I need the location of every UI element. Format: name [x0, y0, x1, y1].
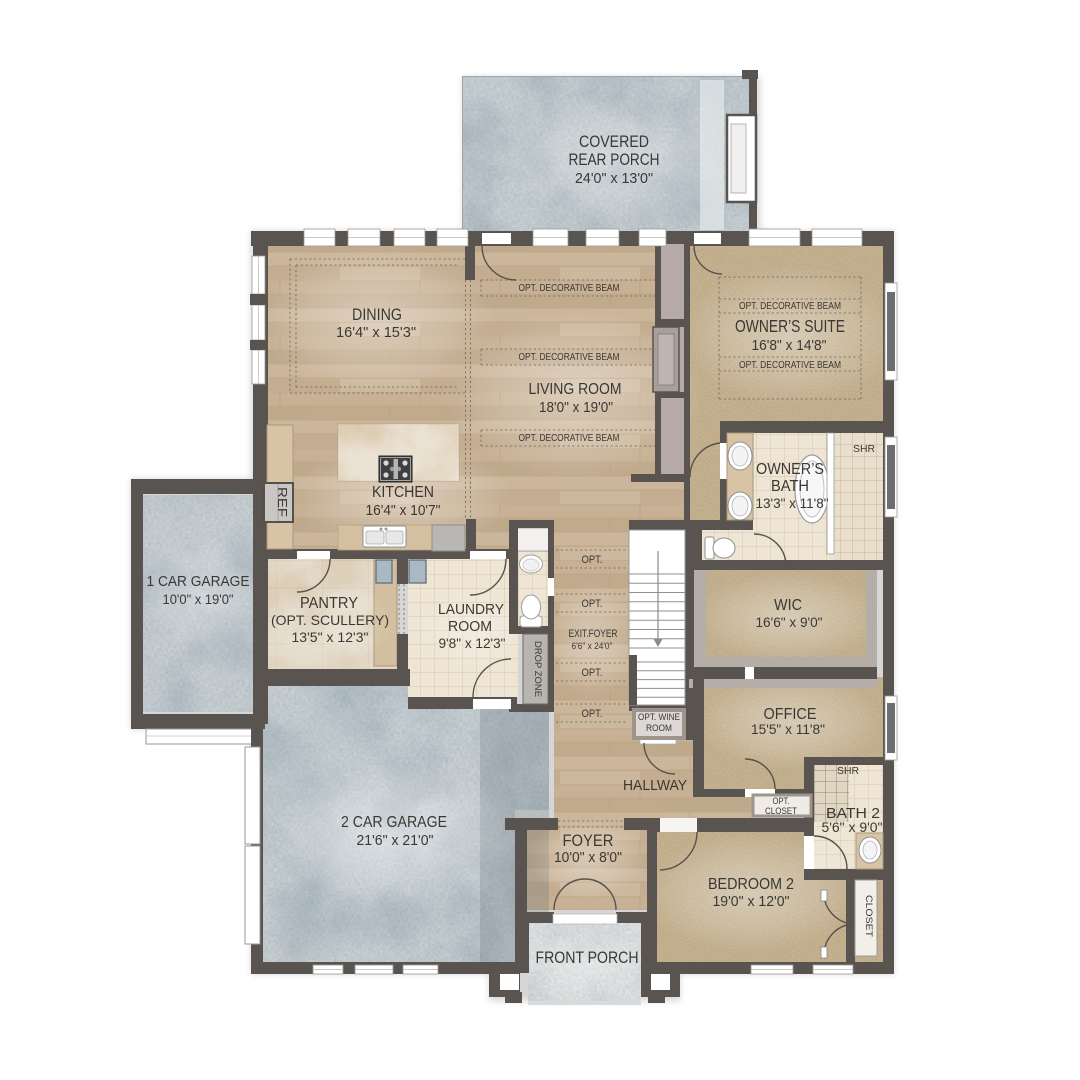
svg-text:19'0" x 12'0": 19'0" x 12'0" — [713, 894, 790, 910]
svg-text:CLOSET: CLOSET — [765, 806, 797, 816]
svg-text:FOYER: FOYER — [563, 832, 614, 850]
svg-text:OPT. DECORATIVE BEAM: OPT. DECORATIVE BEAM — [519, 351, 620, 363]
svg-text:OPT.: OPT. — [582, 598, 603, 610]
svg-text:OPT. DECORATIVE BEAM: OPT. DECORATIVE BEAM — [519, 282, 620, 294]
svg-text:5'6" x 9'0": 5'6" x 9'0" — [822, 820, 883, 835]
svg-text:OPT. DECORATIVE BEAM: OPT. DECORATIVE BEAM — [519, 432, 620, 444]
svg-text:13'3" x 11'8": 13'3" x 11'8" — [756, 495, 829, 511]
svg-text:OPT.: OPT. — [582, 708, 603, 720]
svg-text:18'0" x 19'0": 18'0" x 19'0" — [539, 399, 613, 416]
svg-text:ROOM: ROOM — [646, 723, 672, 734]
svg-text:HALLWAY: HALLWAY — [623, 777, 687, 794]
svg-text:(OPT. SCULLERY): (OPT. SCULLERY) — [271, 612, 389, 628]
svg-text:SHR: SHR — [853, 444, 875, 455]
svg-text:BATH: BATH — [771, 478, 809, 495]
svg-text:EXIT.FOYER: EXIT.FOYER — [569, 628, 618, 640]
svg-text:SHR: SHR — [837, 766, 859, 777]
svg-text:LAUNDRY: LAUNDRY — [438, 601, 504, 618]
svg-text:21'6" x 21'0": 21'6" x 21'0" — [357, 833, 434, 849]
svg-text:24'0" x 13'0": 24'0" x 13'0" — [575, 170, 653, 187]
svg-text:6'6" x 24'0": 6'6" x 24'0" — [572, 641, 613, 652]
svg-text:REF: REF — [275, 487, 289, 517]
svg-text:COVERED: COVERED — [579, 133, 649, 151]
svg-text:ROOM: ROOM — [448, 618, 492, 635]
svg-text:OPT. DECORATIVE BEAM: OPT. DECORATIVE BEAM — [739, 360, 841, 371]
svg-text:DROP ZONE: DROP ZONE — [532, 641, 543, 697]
svg-text:13'5" x 12'3": 13'5" x 12'3" — [292, 630, 369, 645]
svg-text:16'6" x 9'0": 16'6" x 9'0" — [756, 614, 823, 630]
svg-text:9'8" x 12'3": 9'8" x 12'3" — [439, 636, 506, 651]
svg-text:CLOSET: CLOSET — [864, 895, 874, 938]
svg-text:OPT. DECORATIVE BEAM: OPT. DECORATIVE BEAM — [739, 301, 841, 312]
svg-text:BEDROOM 2: BEDROOM 2 — [708, 876, 794, 893]
svg-text:KITCHEN: KITCHEN — [372, 484, 434, 501]
svg-text:16'4" x 10'7": 16'4" x 10'7" — [366, 503, 441, 519]
svg-text:OPT. WINE: OPT. WINE — [638, 712, 680, 723]
svg-text:OPT.: OPT. — [582, 554, 603, 566]
svg-text:WIC: WIC — [774, 597, 802, 614]
svg-text:10'0" x 19'0": 10'0" x 19'0" — [163, 592, 234, 607]
svg-text:16'8" x 14'8": 16'8" x 14'8" — [752, 337, 827, 354]
svg-text:2 CAR GARAGE: 2 CAR GARAGE — [341, 814, 447, 831]
svg-text:FRONT PORCH: FRONT PORCH — [536, 949, 639, 967]
svg-text:OPT.: OPT. — [773, 796, 790, 806]
svg-text:16'4" x 15'3": 16'4" x 15'3" — [336, 324, 416, 341]
svg-text:1 CAR GARAGE: 1 CAR GARAGE — [147, 574, 250, 590]
svg-text:OWNER’S SUITE: OWNER’S SUITE — [735, 316, 845, 336]
svg-text:REAR PORCH: REAR PORCH — [569, 151, 660, 169]
svg-text:OPT.: OPT. — [582, 667, 603, 679]
svg-text:10'0" x 8'0": 10'0" x 8'0" — [554, 850, 622, 866]
svg-text:OWNER’S: OWNER’S — [756, 461, 824, 478]
svg-text:LIVING ROOM: LIVING ROOM — [529, 381, 622, 398]
svg-text:PANTRY: PANTRY — [300, 595, 358, 612]
svg-text:DINING: DINING — [352, 305, 402, 324]
svg-text:15'5" x 11'8": 15'5" x 11'8" — [751, 721, 825, 737]
